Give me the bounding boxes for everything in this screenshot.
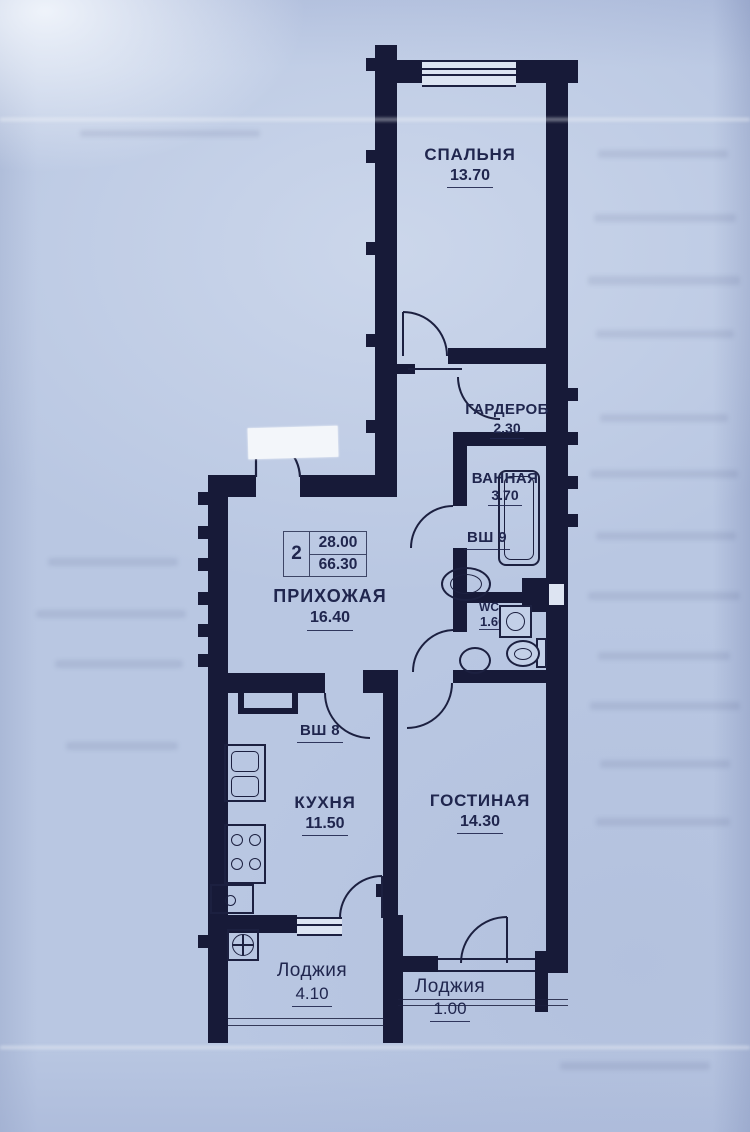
room-area: 14.30: [405, 811, 555, 834]
washing-machine-drum: [506, 612, 525, 631]
living-loggia-door-arc: [461, 917, 507, 963]
room-name: СПАЛЬНЯ: [395, 144, 545, 165]
room-name: Лоджия: [375, 976, 525, 998]
whiteout-patch: [248, 426, 339, 460]
room-label-wardrobe: ГАРДЕРОБ 2.30: [445, 401, 569, 439]
room-area: 4.10: [237, 982, 387, 1007]
room-label-bathroom: ВАННАЯ 3.70: [443, 470, 567, 506]
apartment-data-stamp: 2 28.00 66.30: [283, 531, 367, 577]
room-name: ГАРДЕРОБ: [445, 401, 569, 419]
room-label-living-room: ГОСТИНАЯ 14.30: [405, 790, 555, 834]
kitchen-loggia-door-arc: [340, 876, 382, 918]
label-vent-shaft-8: ВШ 8: [286, 720, 354, 743]
room-area: 2.30: [445, 419, 569, 439]
stamp-area-bottom: 66.30: [310, 555, 366, 577]
room-area: 13.70: [395, 165, 545, 188]
room-area: 3.70: [443, 487, 567, 506]
label-vent-shaft-9: ВШ 9: [453, 527, 521, 550]
stamp-room-count: 2: [284, 532, 310, 576]
room-area: 11.50: [250, 813, 400, 836]
room-area: 1.00: [375, 998, 525, 1022]
bedroom-door-arc: [403, 312, 447, 356]
room-label-kitchen: КУХНЯ 11.50: [250, 792, 400, 836]
room-name: ГОСТИНАЯ: [405, 790, 555, 811]
scanned-floor-plan-page: СПАЛЬНЯ 13.70 ГАРДЕРОБ 2.30 ВАННАЯ 3.70 …: [0, 0, 750, 1132]
room-name: КУХНЯ: [250, 792, 400, 813]
room-name: ВШ 8: [286, 720, 354, 743]
room-name: ПРИХОЖАЯ: [255, 585, 405, 607]
room-label-bedroom: СПАЛЬНЯ 13.70: [395, 144, 545, 188]
wc-door-arc: [413, 630, 453, 672]
room-name: Лоджия: [237, 959, 387, 982]
living-room-door-arc: [407, 683, 452, 728]
room-name: ВАННАЯ: [443, 470, 567, 487]
room-name: ВШ 9: [453, 527, 521, 550]
washing-machine: [499, 605, 532, 638]
room-area: 16.40: [255, 607, 405, 631]
bathroom-door-arc: [411, 506, 453, 548]
room-label-hallway: ПРИХОЖАЯ 16.40: [255, 585, 405, 631]
room-label-loggia-left: Лоджия 4.10: [237, 959, 387, 1007]
stamp-area-top: 28.00: [310, 532, 366, 555]
room-label-loggia-right: Лоджия 1.00: [375, 976, 525, 1022]
